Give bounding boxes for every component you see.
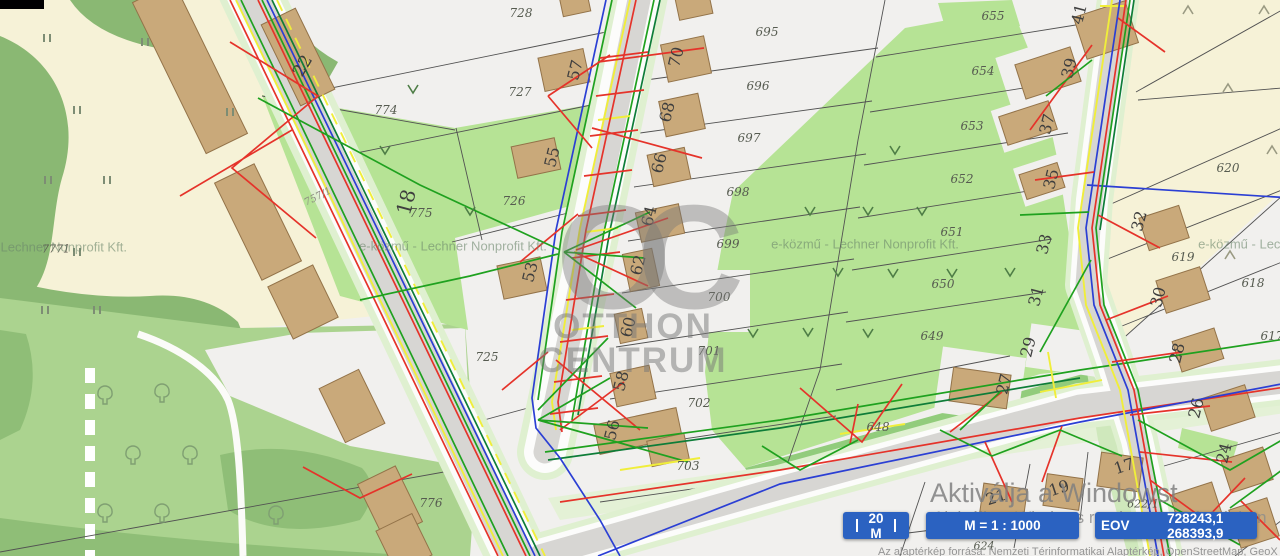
parcel-label: 696 (747, 79, 770, 93)
parcel-label: 695 (756, 25, 779, 39)
windows-activation-watermark-line1: Aktiválja a Windowst (930, 478, 1178, 509)
corner-black-box (0, 0, 44, 9)
parcel-label: 655 (982, 9, 1005, 23)
map-application: 728727774775726725776757/177716956966976… (0, 0, 1280, 556)
otthon-centrum-watermark: OC OTTHON CENTRUM (539, 175, 741, 380)
eov-coordinates: 728243,1 268393,9 (1140, 511, 1251, 541)
parcel-label: 774 (375, 103, 398, 117)
parcel-label: 654 (972, 64, 995, 78)
parcel-label: 618 (1242, 276, 1265, 290)
basemap-attribution: Az alaptérkép forrása: Nemzeti Térinform… (878, 546, 1280, 556)
eov-coordinates-button[interactable]: EOV 728243,1 268393,9 (1095, 512, 1257, 539)
utility-watermark-text: e-közmű - Lechner Nonprofit Kft. (359, 239, 547, 254)
parcel-label: 726 (503, 194, 526, 208)
scale-ratio-button[interactable]: M = 1 : 1000 (926, 512, 1079, 539)
scale-bar-label: 20 M (858, 511, 894, 541)
parcel-label: 702 (688, 396, 711, 410)
parcel-label: 697 (738, 131, 761, 145)
scale-bar: 20 M (849, 511, 903, 541)
oc-line2: CENTRUM (539, 341, 728, 380)
parcel-label: 728 (510, 6, 533, 20)
scale-bar-right-tick (894, 519, 896, 532)
parcel-label: 700 (708, 290, 731, 304)
scale-bar-button[interactable]: 20 M (843, 512, 909, 539)
parcel-label: 648 (867, 420, 890, 434)
parcel-label: 650 (932, 277, 955, 291)
utility-watermark-text: e-közmű - Lechner Nonprofit Kft. (1198, 237, 1280, 252)
utility-watermark-text: e-közmű - Lechner Nonprofit Kft. (0, 240, 127, 255)
scale-ratio-label: M = 1 : 1000 (964, 518, 1040, 533)
parcel-label: 617 (1261, 329, 1280, 343)
eov-label: EOV (1101, 518, 1130, 533)
parcel-label: 698 (727, 185, 750, 199)
parcel-label: 620 (1217, 161, 1240, 175)
parcel-label: 776 (420, 496, 443, 510)
parcel-label: 649 (921, 329, 944, 343)
parcel-label: 653 (961, 119, 984, 133)
map-canvas[interactable]: 728727774775726725776757/177716956966976… (0, 0, 1280, 556)
parcel-label: 619 (1172, 250, 1195, 264)
parcel-label: 727 (509, 85, 532, 99)
utility-watermark-text: e-közmű - Lechner Nonprofit Kft. (771, 237, 959, 252)
parcel-label: 652 (951, 172, 974, 186)
parcel-label: 725 (476, 350, 499, 364)
parcel-label: 699 (717, 237, 740, 251)
parcel-label: 703 (677, 459, 700, 473)
